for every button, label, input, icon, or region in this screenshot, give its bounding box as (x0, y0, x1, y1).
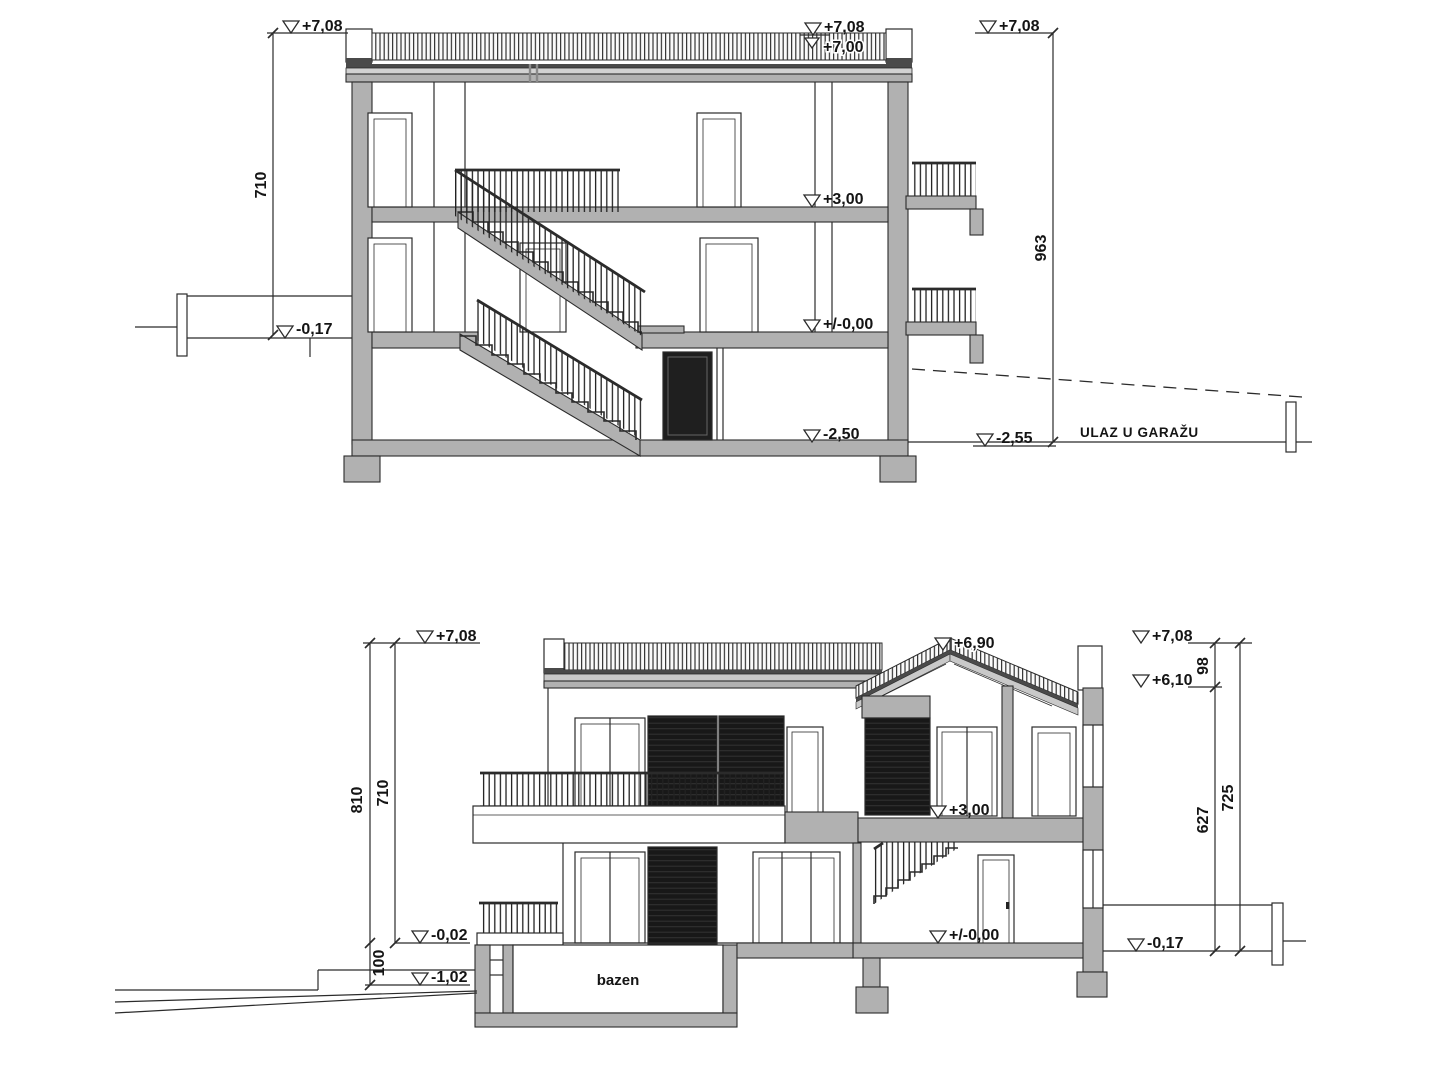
dim-left-total: 810 (349, 787, 366, 814)
balcony-slab (473, 806, 785, 843)
level-roof-top: +7,08 (824, 19, 865, 36)
balcony-lower (906, 289, 983, 363)
level-marker-icon (412, 973, 428, 985)
door (697, 113, 741, 207)
level-terrace-small: -0,02 (431, 927, 468, 944)
footing-center (856, 987, 888, 1013)
footing-right (1077, 972, 1107, 997)
roof-hatch-band (372, 33, 886, 60)
balcony-railing (912, 289, 976, 322)
level-terrace-right: -0,17 (1147, 935, 1184, 952)
cut-wall (853, 843, 861, 943)
terrace-end-post (1272, 903, 1283, 965)
attic-wall (1002, 686, 1013, 818)
dim-left-step: 100 (371, 950, 388, 977)
level-garage-entry: -2,55 (996, 430, 1033, 447)
dim-left-upper: 710 (375, 780, 392, 807)
garage-entrance-label: ULAZ U GARAŽU (1080, 425, 1199, 440)
door (1032, 727, 1076, 816)
level-roof-slab: +7,00 (823, 39, 864, 56)
balcony-support (970, 335, 983, 363)
level-first-floor: +3,00 (949, 802, 990, 819)
level-marker-icon (980, 21, 996, 33)
section-drawings: 710 +7,08 -0,17 +7,08 +7,00 +7,08 963 +3… (0, 0, 1440, 1080)
dim-roof-offset: 98 (1195, 657, 1212, 675)
level-marker-icon (1128, 939, 1144, 951)
window-shutter (648, 847, 717, 946)
balcony-slab (906, 196, 976, 209)
level-marker-icon (977, 434, 993, 446)
pool-inner-wall (503, 945, 513, 1013)
terrace-end-post (177, 294, 187, 356)
level-ground-left: -1,02 (431, 969, 468, 986)
dim-height-left: 710 (253, 172, 270, 199)
right-terrace (1103, 903, 1306, 965)
pool-floor-slab (475, 1013, 737, 1027)
level-marker-icon (417, 631, 433, 643)
dim-height-right: 963 (1033, 235, 1050, 262)
bottom-section-drawing: bazen 810 710 100 +7,08 -0,02 -1, (115, 628, 1306, 1027)
ground-slab (853, 943, 1084, 958)
footing-right (880, 456, 916, 482)
boundary-post (1286, 402, 1296, 452)
level-eave: +6,10 (1152, 672, 1193, 689)
balcony-upper (906, 163, 983, 235)
spandrel-wall (862, 696, 930, 718)
door (368, 113, 412, 207)
level-basement: -2,50 (823, 426, 860, 443)
roof-hatch-band (564, 643, 882, 670)
pool-wall-right (723, 945, 737, 1013)
first-floor-slab (858, 818, 1084, 842)
level-marker-icon (804, 320, 820, 332)
roof-slab (346, 74, 912, 82)
dim-right-total: 725 (1220, 785, 1237, 812)
balcony-railing (479, 903, 558, 933)
pool-wall-left (475, 945, 490, 1013)
top-section-drawing: 710 +7,08 -0,17 +7,08 +7,00 +7,08 963 +3… (135, 18, 1312, 482)
terrain-dashed-line (912, 369, 1302, 397)
balcony-railing (912, 163, 976, 196)
dim-right-lower: 627 (1195, 807, 1212, 834)
level-ground-floor: +/-0,00 (949, 927, 999, 944)
level-marker-icon (930, 931, 946, 943)
sliding-door (753, 852, 840, 943)
footing-left (344, 456, 380, 482)
small-balcony (477, 903, 563, 945)
balcony-slab (906, 322, 976, 335)
balcony-slab (477, 933, 563, 945)
level-marker-icon (283, 21, 299, 33)
level-marker-icon (804, 195, 820, 207)
level-marker-icon (1133, 631, 1149, 643)
level-marker-icon (277, 326, 293, 338)
interior-basement (663, 348, 723, 440)
level-left-top: +7,08 (302, 18, 343, 35)
roof-parapet-left (346, 29, 372, 62)
balcony-support (970, 209, 983, 235)
ground-slab-right (636, 332, 888, 348)
door (368, 238, 412, 332)
roof-parapet-left (544, 639, 564, 673)
pool-label: bazen (597, 972, 640, 989)
basement-door (663, 352, 712, 440)
level-ground-floor: +/-0,00 (823, 316, 873, 333)
level-terrace-left: -0,17 (296, 321, 333, 338)
glass-door (700, 238, 758, 332)
architectural-sheet: 710 +7,08 -0,17 +7,08 +7,00 +7,08 963 +3… (0, 0, 1440, 1080)
pool-section: bazen (475, 943, 853, 1027)
window (787, 727, 823, 815)
level-marker-icon (412, 931, 428, 943)
level-right-top: +7,08 (999, 18, 1040, 35)
first-floor-slab (372, 207, 888, 222)
level-ridge: +6,90 (954, 635, 995, 652)
level-right-top: +7,08 (1152, 628, 1193, 645)
wall-stem (863, 958, 880, 987)
deck-slab (737, 943, 853, 958)
roof-parapet-right (1078, 646, 1102, 690)
roof-parapet-right (886, 29, 912, 62)
level-marker-icon (1133, 675, 1149, 687)
balcony-railing (480, 773, 783, 806)
floor-edge (785, 812, 858, 843)
level-first-floor: +3,00 (823, 191, 864, 208)
level-left-top: +7,08 (436, 628, 477, 645)
window-shutter (865, 718, 930, 815)
right-wall (888, 82, 908, 444)
door-handle (1006, 902, 1010, 909)
